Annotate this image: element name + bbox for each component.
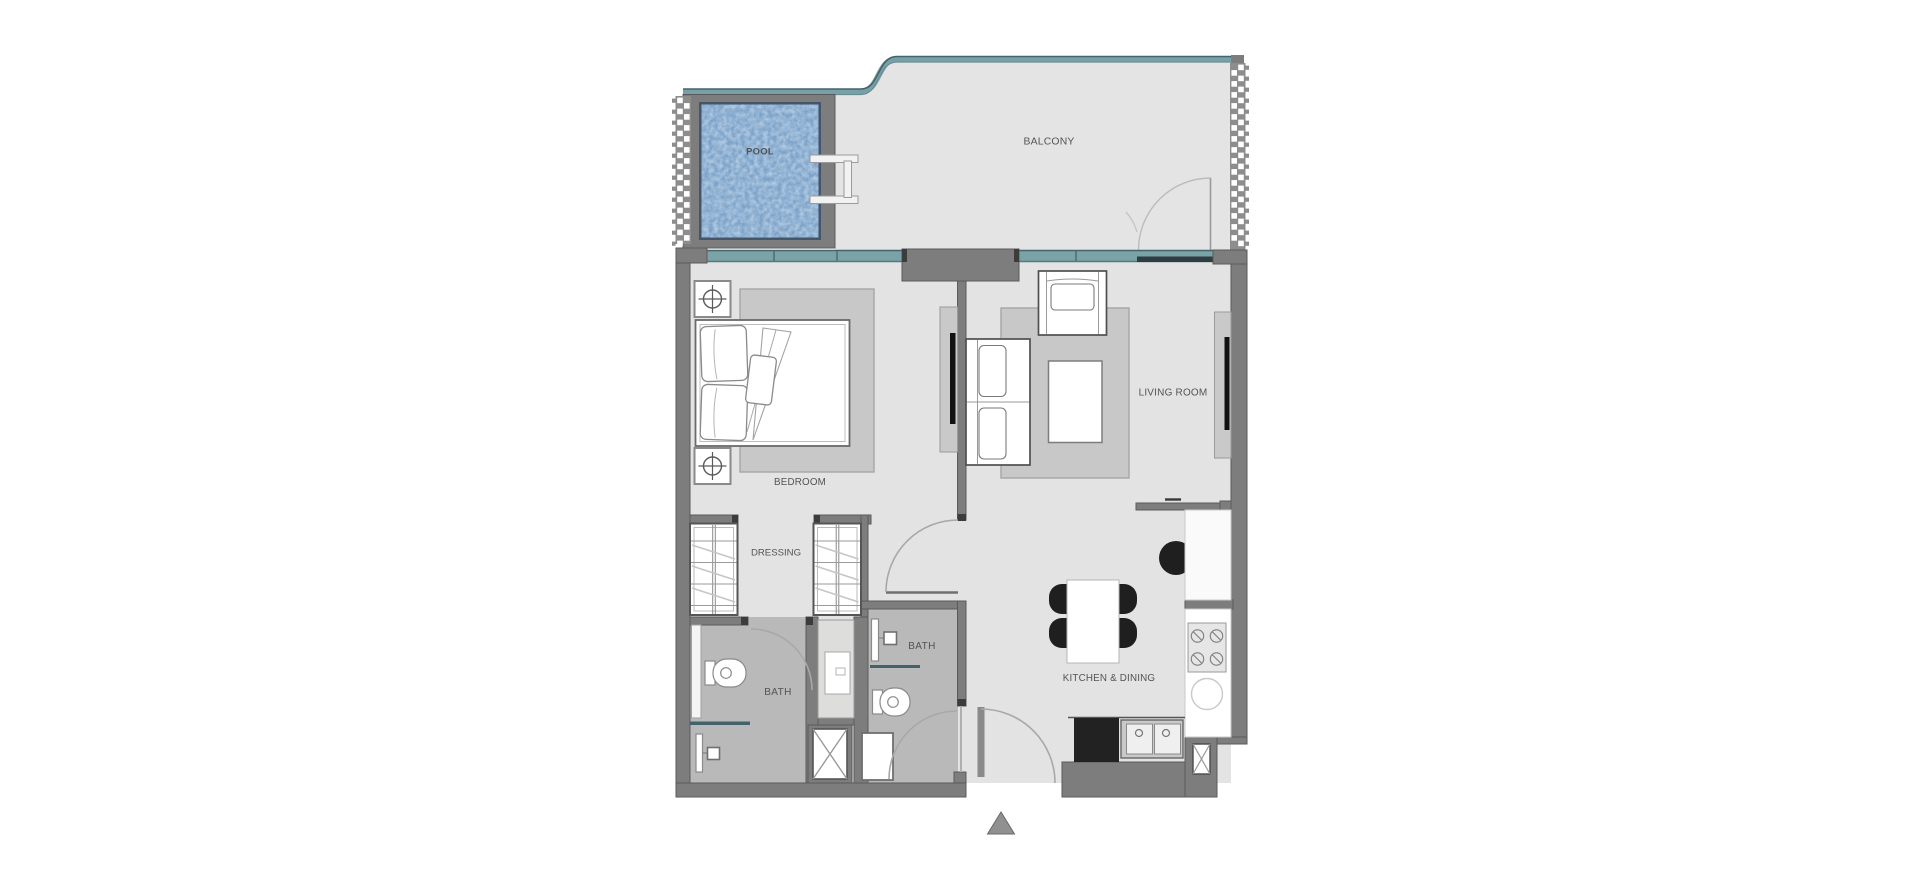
- svg-text:BALCONY: BALCONY: [1023, 137, 1074, 148]
- svg-text:KITCHEN & DINING: KITCHEN & DINING: [1063, 673, 1155, 684]
- svg-text:BATH: BATH: [908, 641, 936, 652]
- svg-text:BEDROOM: BEDROOM: [774, 477, 826, 488]
- svg-text:DRESSING: DRESSING: [751, 548, 801, 559]
- svg-text:LIVING ROOM: LIVING ROOM: [1139, 388, 1208, 399]
- svg-text:BATH: BATH: [764, 687, 792, 698]
- svg-text:POOL: POOL: [746, 146, 774, 157]
